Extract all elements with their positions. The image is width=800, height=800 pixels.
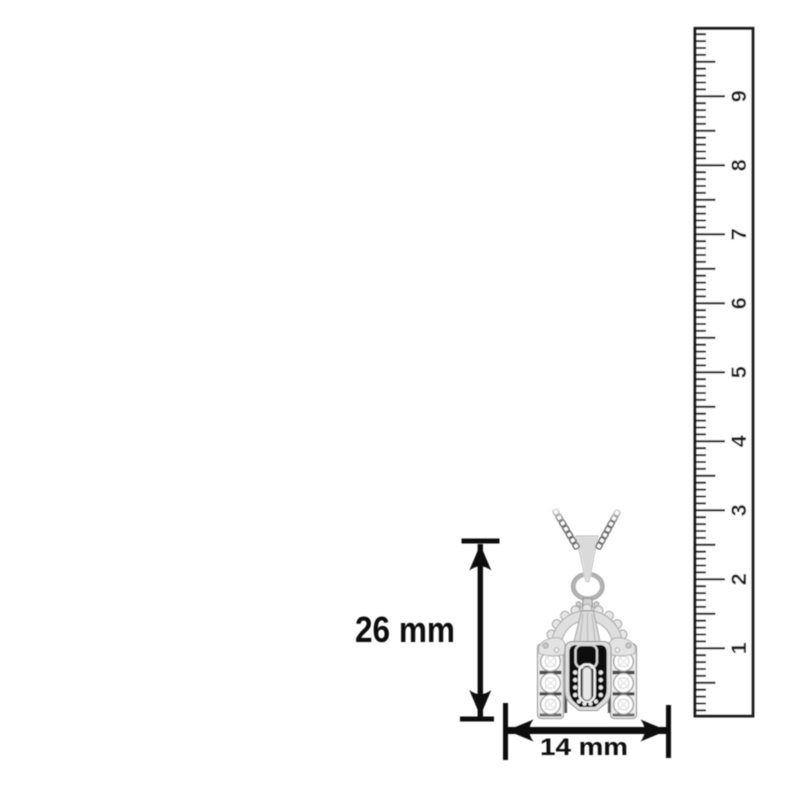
svg-text:1: 1: [727, 642, 751, 654]
svg-text:3: 3: [727, 504, 751, 516]
svg-text:8: 8: [727, 159, 751, 171]
svg-text:6: 6: [727, 297, 751, 309]
svg-text:14 mm: 14 mm: [540, 734, 628, 761]
svg-text:2: 2: [727, 573, 751, 585]
svg-text:7: 7: [727, 228, 751, 240]
svg-text:4: 4: [727, 435, 751, 447]
svg-text:5: 5: [727, 366, 751, 378]
svg-text:26 mm: 26 mm: [355, 609, 455, 650]
svg-text:9: 9: [727, 90, 751, 102]
